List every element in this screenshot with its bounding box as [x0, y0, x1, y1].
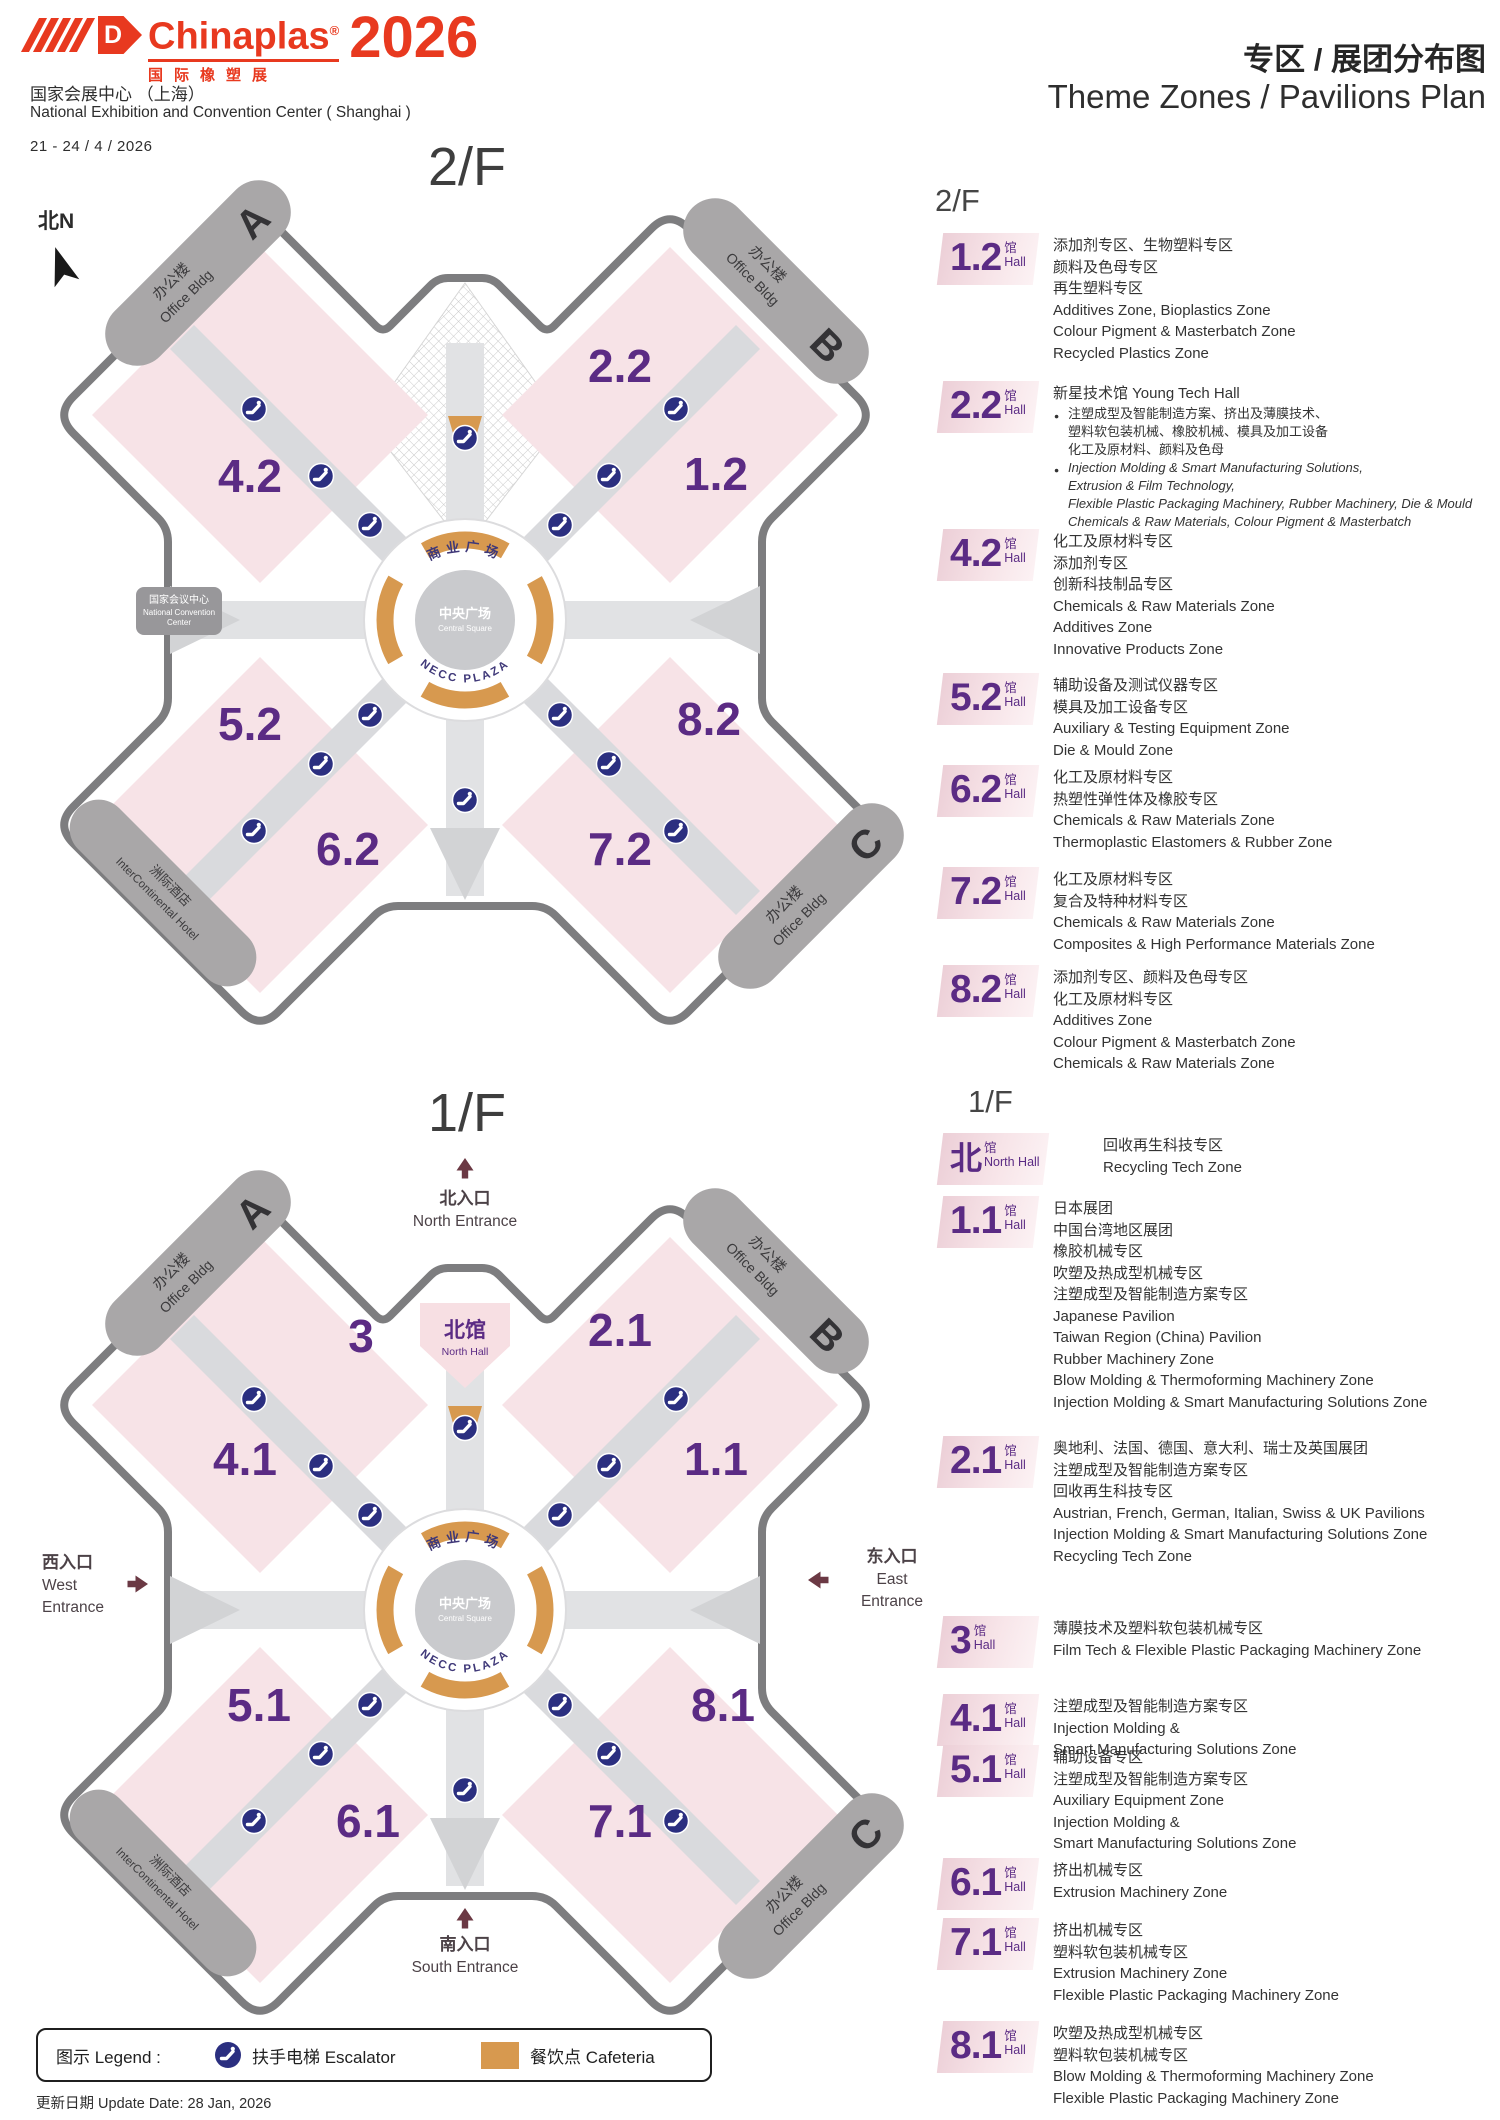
svg-text:中央广场: 中央广场 — [439, 606, 491, 621]
hall-label-5.1: 5.1 — [227, 1679, 291, 1731]
hall-label-3: 3 — [348, 1310, 374, 1362]
hall-unit-cn: 馆 — [1004, 2029, 1026, 2043]
hall-unit-en: Hall — [1004, 403, 1026, 417]
legend-line: Recycling Tech Zone — [1103, 1157, 1242, 1179]
legend-line: Extrusion Machinery Zone — [1053, 1963, 1339, 1985]
pavilions-plan-poster: D Chinaplas® 国际橡塑展 2026 国家会展中心 （上海） Nati… — [0, 0, 1500, 2120]
hall-unit-cn: 馆 — [1004, 537, 1026, 551]
svg-text:北入口: 北入口 — [440, 1189, 491, 1208]
legend-line: 化工及原材料、颜料及色母 — [1068, 441, 1472, 459]
legend-line: Flexible Plastic Packaging Machinery, Ru… — [1068, 495, 1472, 513]
hall-unit-cn: 馆 — [984, 1141, 1040, 1155]
logo-slashes-icon — [30, 18, 90, 52]
svg-text:北馆: 北馆 — [444, 1318, 486, 1342]
hall-unit-cn: 馆 — [1004, 681, 1026, 695]
legend-line: 橡胶机械专区 — [1053, 1241, 1427, 1263]
hall-unit-en: Hall — [1004, 2043, 1026, 2057]
svg-text:Central Square: Central Square — [438, 1614, 492, 1623]
legend-line: Chemicals & Raw Materials, Colour Pigmen… — [1068, 513, 1472, 531]
hall-label-4.2: 4.2 — [218, 450, 282, 502]
hall-number: 2.1 — [950, 1437, 1001, 1485]
hall-badge: 北馆North Hall — [940, 1133, 1046, 1185]
hall-number: 5.1 — [950, 1746, 1001, 1794]
legend-line: 注塑成型及智能制造方案专区 — [1053, 1696, 1296, 1718]
legend-line: Die & Mould Zone — [1053, 740, 1290, 762]
legend-line: 注塑成型及智能制造方案、挤出及薄膜技术、 — [1068, 405, 1472, 423]
legend-line: Additives Zone, Bioplastics Zone — [1053, 300, 1296, 322]
hall-unit-cn: 馆 — [1004, 241, 1026, 255]
hall-badge: 2.2馆Hall — [940, 381, 1036, 433]
hall-unit-cn: 馆 — [1004, 1926, 1026, 1940]
hall-label-2.2: 2.2 — [588, 340, 652, 392]
entrance-arrow-icon — [128, 1576, 149, 1593]
hall-unit-cn: 馆 — [1004, 1204, 1026, 1218]
legend-line: 日本展团 — [1053, 1198, 1427, 1220]
hall-number: 3 — [950, 1617, 971, 1665]
legend-line: 中国台湾地区展团 — [1053, 1220, 1427, 1242]
hall-unit-en: Hall — [1004, 1716, 1026, 1730]
svg-text:国家会议中心: 国家会议中心 — [149, 593, 209, 606]
compass-north-icon: 北N — [38, 210, 79, 287]
legend-line: Extrusion & Film Technology, — [1068, 477, 1472, 495]
escalator-icon — [664, 397, 689, 422]
legend-line: 塑料软包装机械、橡胶机械、模具及加工设备 — [1068, 423, 1472, 441]
escalator-icon — [453, 1778, 478, 1803]
hall-label-6.1: 6.1 — [336, 1795, 400, 1847]
entrance-arrow-icon — [457, 1158, 474, 1179]
legend-line: Austrian, French, German, Italian, Swiss… — [1053, 1503, 1427, 1525]
legend-line: 创新科技制品专区 — [1053, 574, 1275, 596]
escalator-icon — [309, 752, 334, 777]
hall-unit-en: Hall — [1004, 889, 1026, 903]
legend-line: Blow Molding & Thermoforming Machinery Z… — [1053, 1370, 1427, 1392]
legend-line: 辅助设备及测试仪器专区 — [1053, 675, 1290, 697]
hall-number: 8.2 — [950, 966, 1001, 1014]
hall-unit-cn: 馆 — [1004, 1444, 1026, 1458]
escalator-icon — [358, 703, 383, 728]
hall-unit-cn: 馆 — [1004, 389, 1026, 403]
legend-line: 复合及特种材料专区 — [1053, 891, 1375, 913]
escalator-icon — [548, 1503, 573, 1528]
legend-line: Rubber Machinery Zone — [1053, 1349, 1427, 1371]
escalator-icon — [453, 788, 478, 813]
hall-number: 5.2 — [950, 674, 1001, 722]
legend-line: 注塑成型及智能制造方案专区 — [1053, 1284, 1427, 1306]
legend-line: Taiwan Region (China) Pavilion — [1053, 1327, 1427, 1349]
hall-number: 6.1 — [950, 1859, 1001, 1907]
legend-line: Chemicals & Raw Materials Zone — [1053, 596, 1275, 618]
hall-badge: 4.2馆Hall — [940, 529, 1036, 581]
legend-line: 再生塑料专区 — [1053, 278, 1296, 300]
escalator-icon — [358, 1503, 383, 1528]
hall-unit-en: Hall — [1004, 987, 1026, 1001]
legend-line: 新星技术馆 Young Tech Hall — [1053, 383, 1472, 405]
event-year: 2026 — [349, 12, 478, 64]
hall-badge: 1.2馆Hall — [940, 233, 1036, 285]
north-entrance-label: 北入口North Entrance — [413, 1158, 517, 1230]
escalator-icon — [453, 1416, 478, 1441]
svg-text:Center: Center — [167, 618, 191, 627]
update-date: 更新日期 Update Date: 28 Jan, 2026 — [36, 2092, 271, 2113]
hall-number: 4.2 — [950, 530, 1001, 578]
legend-line: 回收再生科技专区 — [1103, 1135, 1242, 1157]
central-plaza: 商业广场中央广场Central SquareNECC PLAZA — [364, 519, 566, 721]
legend-line: 塑料软包装机械专区 — [1053, 1942, 1339, 1964]
legend-line: Chemicals & Raw Materials Zone — [1053, 912, 1375, 934]
chinaplas-logo: D Chinaplas® 国际橡塑展 2026 — [30, 12, 478, 85]
legend-line: Recycling Tech Zone — [1053, 1546, 1427, 1568]
hall-number: 4.1 — [950, 1695, 1001, 1743]
hall-unit-en: Hall — [1004, 1767, 1026, 1781]
legend-line: 添加剂专区、颜料及色母专区 — [1053, 967, 1296, 989]
legend-line: Chemicals & Raw Materials Zone — [1053, 1053, 1296, 1075]
legend-line: 化工及原材料专区 — [1053, 989, 1296, 1011]
central-plaza: 商业广场中央广场Central SquareNECC PLAZA — [364, 1509, 566, 1711]
page-title-en: Theme Zones / Pavilions Plan — [1048, 78, 1486, 116]
escalator-icon — [242, 819, 267, 844]
svg-text:南入口: 南入口 — [440, 1934, 491, 1954]
hall-label-5.2: 5.2 — [218, 698, 282, 750]
logo-d-icon: D — [98, 16, 142, 54]
east-entrance-label: 东入口EastEntrance — [808, 1546, 923, 1610]
legend-line: Extrusion Machinery Zone — [1053, 1882, 1227, 1904]
legend-line: 吹塑及热成型机械专区 — [1053, 2023, 1374, 2045]
escalator-icon — [664, 819, 689, 844]
legend-line: 奥地利、法国、德国、意大利、瑞士及英国展团 — [1053, 1438, 1427, 1460]
hall-badge: 5.1馆Hall — [940, 1745, 1036, 1797]
escalator-icon — [597, 752, 622, 777]
escalator-icon — [664, 1387, 689, 1412]
legend-line: Film Tech & Flexible Plastic Packaging M… — [1053, 1640, 1421, 1662]
west-entrance-label: 西入口WestEntrance — [42, 1553, 148, 1616]
escalator-icon — [597, 1742, 622, 1767]
hall-unit-en: Hall — [1004, 551, 1026, 565]
escalator-icon — [597, 1454, 622, 1479]
hall-number: 1.1 — [950, 1197, 1001, 1245]
hall-badge: 7.2馆Hall — [940, 867, 1036, 919]
legend-line: Auxiliary Equipment Zone — [1053, 1790, 1296, 1812]
legend-line: 辅助设备专区 — [1053, 1747, 1296, 1769]
hall-unit-cn: 馆 — [974, 1624, 996, 1638]
escalator-icon — [309, 464, 334, 489]
legend-line: 模具及加工设备专区 — [1053, 697, 1290, 719]
hall-label-1.2: 1.2 — [684, 448, 748, 500]
hall-label-8.2: 8.2 — [677, 693, 741, 745]
brand-name: Chinaplas® — [148, 12, 339, 56]
hall-label-2.1: 2.1 — [588, 1304, 652, 1356]
hall-badge: 2.1馆Hall — [940, 1436, 1036, 1488]
hall-badge: 4.1馆Hall — [940, 1694, 1036, 1746]
legend-line: 塑料软包装机械专区 — [1053, 2045, 1374, 2067]
legend-heading-legend2f: 2/F — [935, 183, 980, 219]
hall-badge: 8.1馆Hall — [940, 2021, 1036, 2073]
venue-name-en: National Exhibition and Convention Cente… — [30, 104, 411, 122]
escalator-icon — [358, 513, 383, 538]
legend-line: Thermoplastic Elastomers & Rubber Zone — [1053, 832, 1332, 854]
legend-line: Additives Zone — [1053, 617, 1275, 639]
svg-text:North Entrance: North Entrance — [413, 1213, 517, 1230]
hall-label-7.1: 7.1 — [588, 1795, 652, 1847]
escalator-icon — [548, 513, 573, 538]
legend-line: Injection Molding & Smart Manufacturing … — [1053, 1524, 1427, 1546]
legend-line: Composites & High Performance Materials … — [1053, 934, 1375, 956]
svg-text:西入口: 西入口 — [42, 1553, 93, 1572]
svg-text:北N: 北N — [38, 210, 74, 233]
escalator-icon — [242, 397, 267, 422]
legend-line: Auxiliary & Testing Equipment Zone — [1053, 718, 1290, 740]
legend-line: 挤出机械专区 — [1053, 1920, 1339, 1942]
legend-line: Innovative Products Zone — [1053, 639, 1275, 661]
legend-line: Chemicals & Raw Materials Zone — [1053, 810, 1332, 832]
hall-number: 6.2 — [950, 766, 1001, 814]
hall-unit-en: Hall — [1004, 787, 1026, 801]
hall-badge: 5.2馆Hall — [940, 673, 1036, 725]
svg-text:中央广场: 中央广场 — [439, 1596, 491, 1611]
hall-unit-cn: 馆 — [1004, 875, 1026, 889]
hall-label-1.1: 1.1 — [684, 1433, 748, 1485]
svg-text:East: East — [876, 1571, 908, 1588]
legend-line: Injection Molding & Smart Manufacturing … — [1053, 1392, 1427, 1414]
svg-text:东入口: 东入口 — [867, 1546, 918, 1566]
hall-number: 7.1 — [950, 1919, 1001, 1967]
hall-unit-en: Hall — [974, 1638, 996, 1652]
hall-number: 7.2 — [950, 868, 1001, 916]
hall-unit-cn: 馆 — [1004, 1866, 1026, 1880]
legend-line: 化工及原材料专区 — [1053, 531, 1275, 553]
legend-line: Japanese Pavilion — [1053, 1306, 1427, 1328]
legend-line: Smart Manufacturing Solutions Zone — [1053, 1833, 1296, 1855]
entrance-arrow-icon — [808, 1572, 829, 1589]
svg-text:North Hall: North Hall — [442, 1346, 489, 1358]
hall-unit-en: Hall — [1004, 255, 1026, 269]
map-1f: 北馆North Hall商业广场中央广场Central SquareNECC P… — [18, 1118, 928, 2058]
hall-label-4.1: 4.1 — [213, 1433, 277, 1485]
hall-unit-cn: 馆 — [1004, 973, 1026, 987]
hall-unit-en: Hall — [1004, 1458, 1026, 1472]
svg-text:Central Square: Central Square — [438, 624, 492, 633]
svg-text:South Entrance: South Entrance — [412, 1959, 519, 1976]
hall-unit-cn: 馆 — [1004, 773, 1026, 787]
legend-line: Injection Molding & Smart Manufacturing … — [1068, 459, 1472, 477]
page-title-cn: 专区 / 展团分布图 — [1243, 34, 1486, 79]
legend-line: 回收再生科技专区 — [1053, 1481, 1427, 1503]
national-convention-center: 国家会议中心National ConventionCenter — [136, 587, 222, 635]
escalator-icon — [664, 1809, 689, 1834]
hall-unit-en: Hall — [1004, 1218, 1026, 1232]
hall-badge: 6.2馆Hall — [940, 765, 1036, 817]
legend-line: Blow Molding & Thermoforming Machinery Z… — [1053, 2066, 1374, 2088]
hall-number: 1.2 — [950, 234, 1001, 282]
legend-line: 添加剂专区 — [1053, 553, 1275, 575]
escalator-icon — [309, 1742, 334, 1767]
escalator-icon — [597, 464, 622, 489]
svg-text:West: West — [42, 1577, 78, 1594]
hall-unit-cn: 馆 — [1004, 1702, 1026, 1716]
hall-badge: 7.1馆Hall — [940, 1918, 1036, 1970]
escalator-icon — [548, 703, 573, 728]
escalator-icon — [548, 1693, 573, 1718]
legend-line: 化工及原材料专区 — [1053, 869, 1375, 891]
legend-line: 挤出机械专区 — [1053, 1860, 1227, 1882]
hall-number: 2.2 — [950, 382, 1001, 430]
legend-line: 热塑性弹性体及橡胶专区 — [1053, 789, 1332, 811]
svg-text:National Convention: National Convention — [143, 608, 215, 617]
legend-line: 注塑成型及智能制造方案专区 — [1053, 1769, 1296, 1791]
legend-heading-legend1f: 1/F — [968, 1084, 1013, 1120]
hall-label-7.2: 7.2 — [588, 823, 652, 875]
svg-text:Entrance: Entrance — [861, 1593, 923, 1610]
entrance-arrow-icon — [457, 1908, 474, 1929]
legend-line: Additives Zone — [1053, 1010, 1296, 1032]
hall-number: 8.1 — [950, 2022, 1001, 2070]
legend-line: 薄膜技术及塑料软包装机械专区 — [1053, 1618, 1421, 1640]
legend-line: Injection Molding & — [1053, 1812, 1296, 1834]
legend-line: 化工及原材料专区 — [1053, 767, 1332, 789]
hall-unit-en: Hall — [1004, 1940, 1026, 1954]
legend-line: Flexible Plastic Packaging Machinery Zon… — [1053, 2088, 1374, 2110]
legend-line: Colour Pigment & Masterbatch Zone — [1053, 321, 1296, 343]
hall-label-8.1: 8.1 — [691, 1679, 755, 1731]
escalator-icon — [242, 1809, 267, 1834]
escalator-icon — [309, 1454, 334, 1479]
hall-badge: 8.2馆Hall — [940, 965, 1036, 1017]
legend-line: 颜料及色母专区 — [1053, 257, 1296, 279]
legend-line: 吹塑及热成型机械专区 — [1053, 1263, 1427, 1285]
legend-line: Colour Pigment & Masterbatch Zone — [1053, 1032, 1296, 1054]
escalator-icon — [453, 426, 478, 451]
hall-badge: 6.1馆Hall — [940, 1858, 1036, 1910]
south-entrance-label: 南入口South Entrance — [412, 1908, 519, 1976]
hall-label-6.2: 6.2 — [316, 823, 380, 875]
hall-unit-en: North Hall — [984, 1155, 1040, 1169]
venue-name-cn: 国家会展中心 （上海） — [30, 80, 205, 105]
hall-number: 北 — [950, 1134, 981, 1182]
hall-unit-cn: 馆 — [1004, 1753, 1026, 1767]
legend-line: Recycled Plastics Zone — [1053, 343, 1296, 365]
hall-badge: 1.1馆Hall — [940, 1196, 1036, 1248]
hall-unit-en: Hall — [1004, 1880, 1026, 1894]
legend-line: Injection Molding & — [1053, 1718, 1296, 1740]
escalator-icon — [358, 1693, 383, 1718]
escalator-icon — [242, 1387, 267, 1412]
legend-line: 添加剂专区、生物塑料专区 — [1053, 235, 1296, 257]
legend-line: 注塑成型及智能制造方案专区 — [1053, 1460, 1427, 1482]
hall-unit-en: Hall — [1004, 695, 1026, 709]
svg-text:Entrance: Entrance — [42, 1599, 104, 1616]
map-2f: 商业广场中央广场Central SquareNECC PLAZA办公楼Offic… — [18, 128, 928, 1068]
hall-badge: 3馆Hall — [940, 1616, 1036, 1668]
legend-line: Flexible Plastic Packaging Machinery Zon… — [1053, 1985, 1339, 2007]
